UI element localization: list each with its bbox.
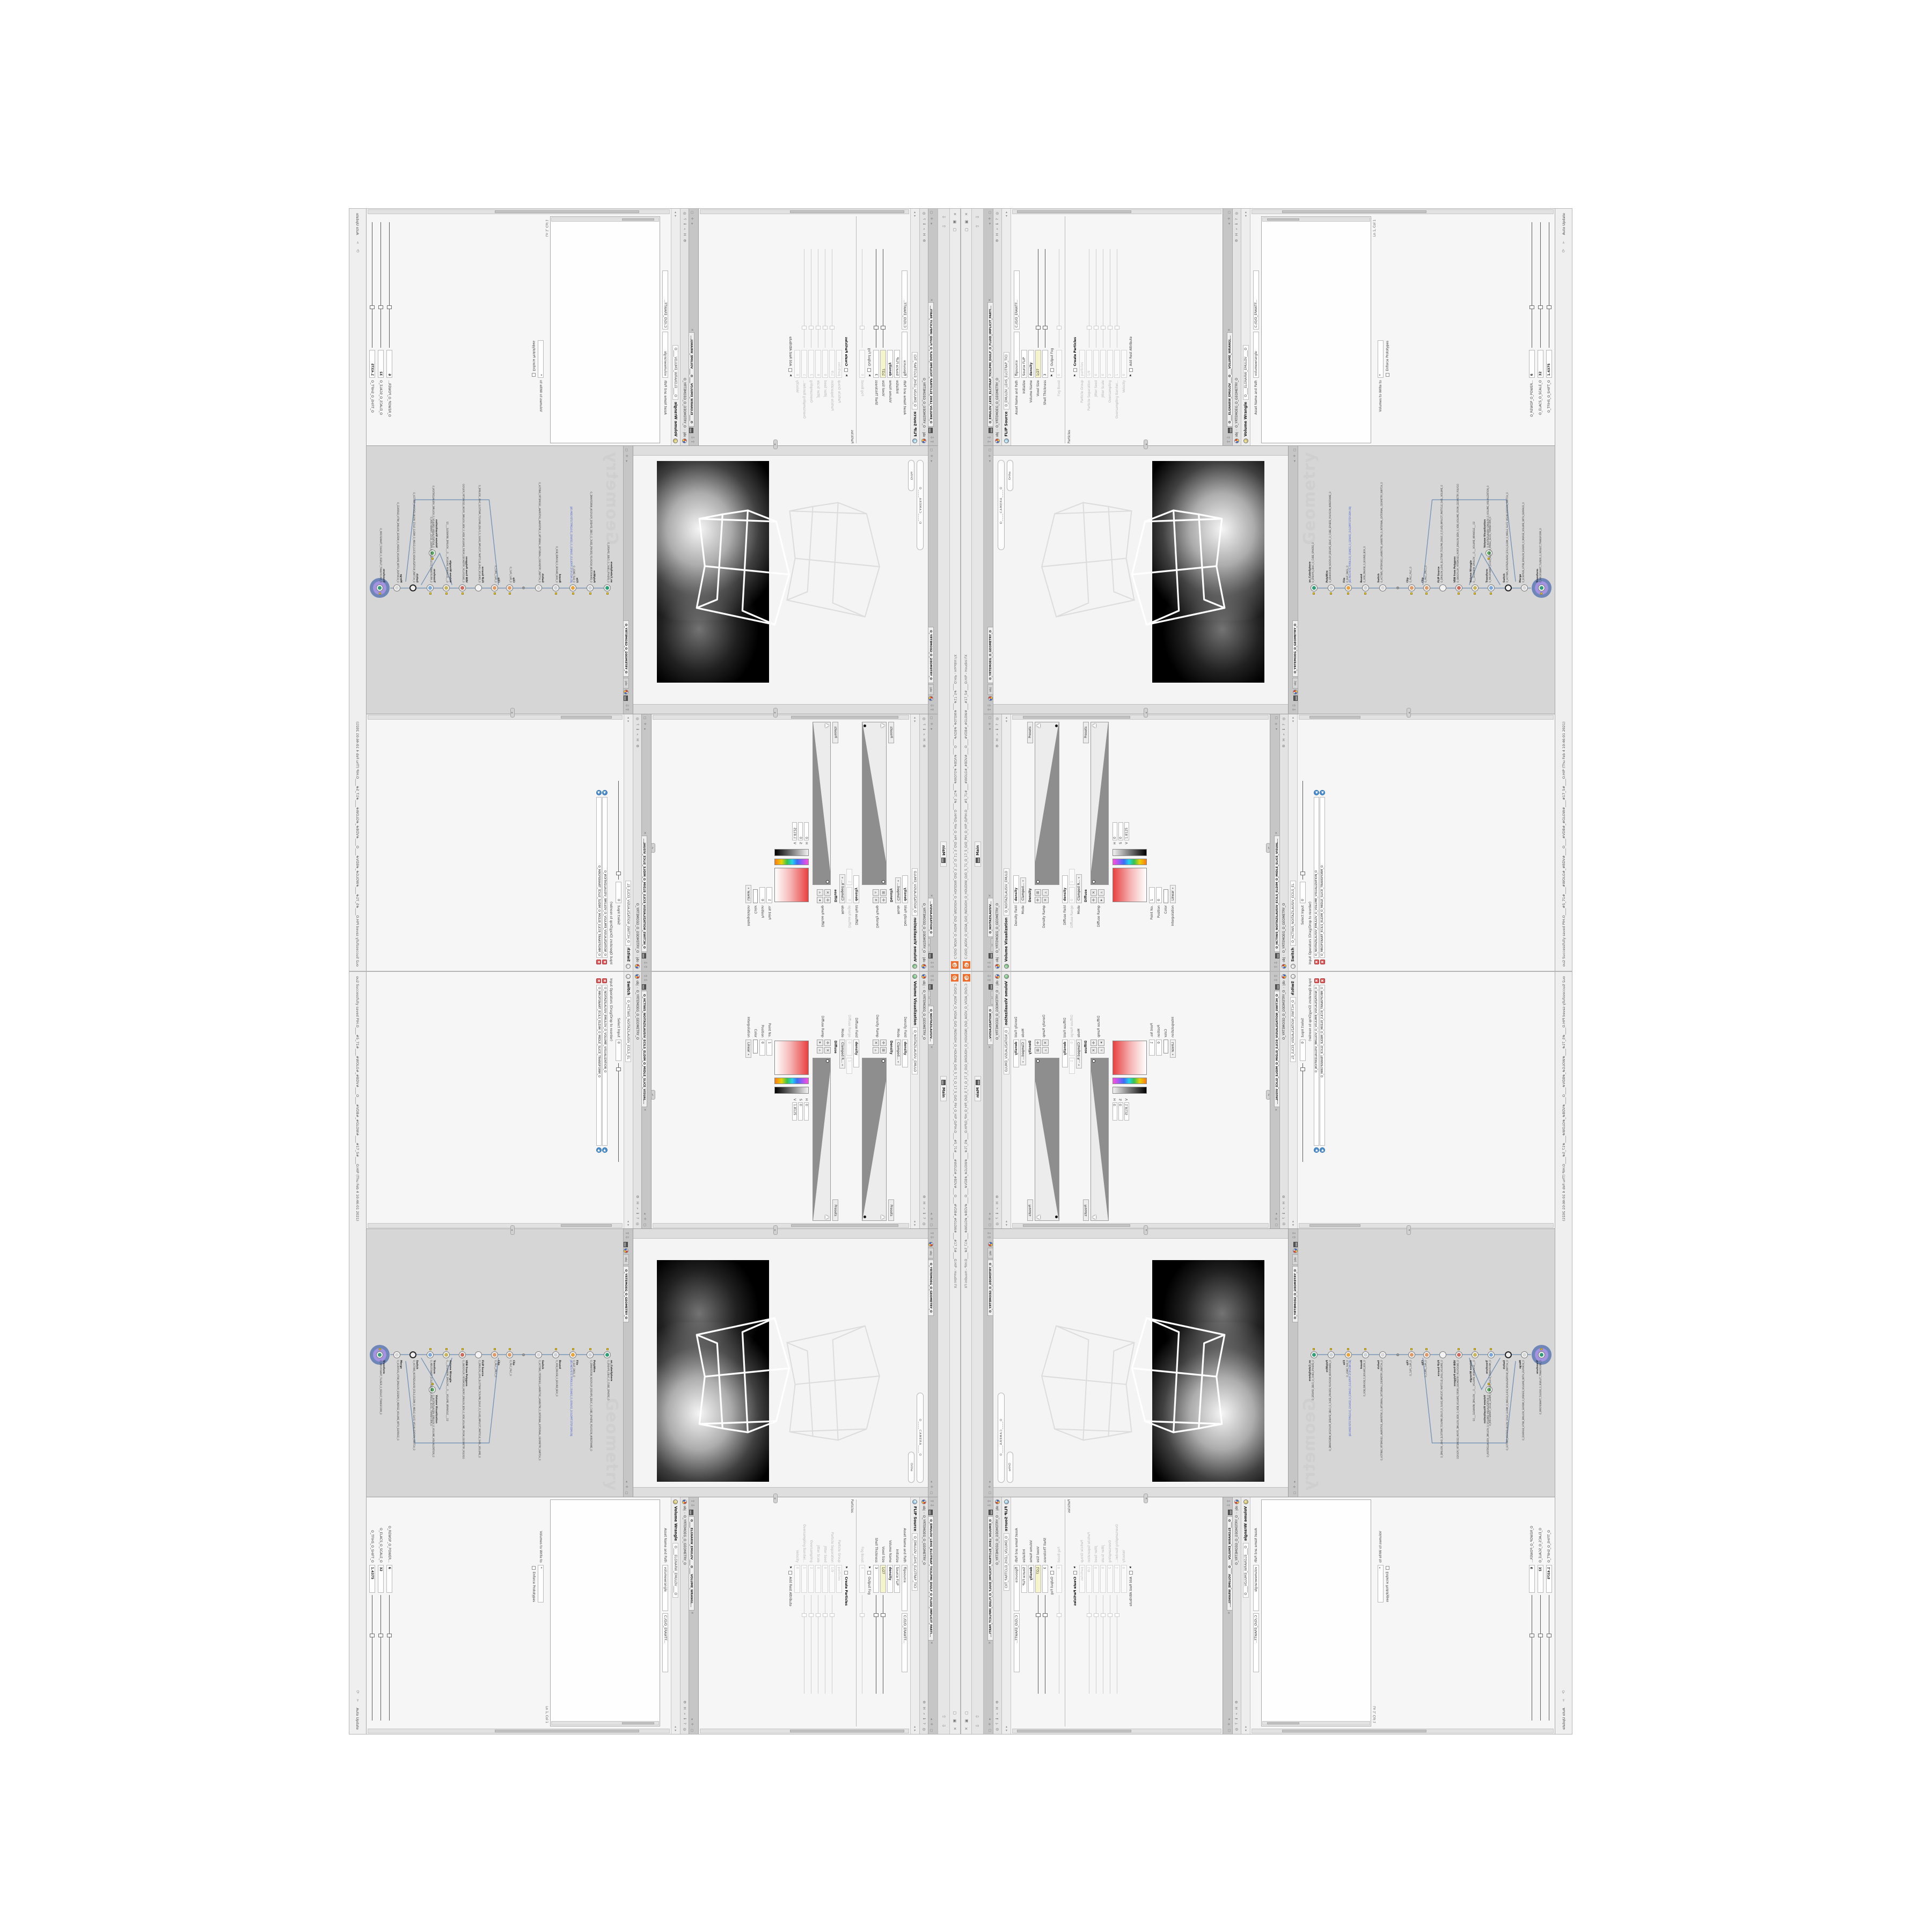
network-node[interactable]	[1394, 584, 1401, 591]
menu-item[interactable]	[943, 1002, 945, 1009]
param-slider[interactable]	[809, 1595, 814, 1697]
param-row[interactable]: Mode Clamped R...	[839, 974, 846, 1221]
node-name-field[interactable]: O_NOITAZILAUSIV_EMULO	[912, 868, 918, 916]
interpolation-dropdown[interactable]: Linear	[1170, 885, 1176, 903]
pane-maximize-icon[interactable]: ⇧⇩	[987, 1230, 993, 1240]
network-node[interactable]: Bound O_XOB_DNUOB_O_BOUND_BOX_O	[552, 584, 559, 591]
hsv-value[interactable]: 0	[1113, 822, 1117, 840]
param-slider[interactable]	[379, 1595, 384, 1724]
param-field[interactable]: 6	[1529, 1565, 1535, 1593]
hsv-value[interactable]: 0	[1118, 822, 1123, 840]
param-row[interactable]: ⚑ Shell Thickness 3	[873, 1499, 880, 1726]
param-row[interactable]: ⚑ Jitter Seed 0	[822, 216, 829, 443]
param-field[interactable]: density	[902, 875, 908, 903]
channel-row[interactable]: O_TFIHS_O_SHIFT_O 1.4375	[368, 1499, 377, 1726]
channel-row[interactable]: O_ELACS_O_SCALE_O 32	[1536, 216, 1545, 443]
scrollbar[interactable]	[1012, 209, 1221, 214]
param-field[interactable]: 0	[616, 1040, 621, 1061]
node-name-field[interactable]: O_HCTIWS_NOITAZILAUSIV_ECILS_EL	[1290, 881, 1296, 945]
param-row[interactable]: Mode Clamped...	[1020, 722, 1027, 969]
asset-name-field[interactable]: volumewrangle	[1253, 332, 1259, 378]
hsv-row[interactable]: H 0	[1113, 822, 1117, 846]
mode-dropdown[interactable]: Clamped...	[895, 1040, 901, 1065]
param-row[interactable]: Select Input 0	[1299, 974, 1306, 1221]
value-bar[interactable]	[1113, 1087, 1147, 1094]
scrollbar[interactable]	[1252, 1729, 1554, 1733]
checkbox[interactable]	[867, 368, 871, 372]
network-canvas[interactable]: Geometry	[367, 1229, 623, 1496]
param-row[interactable]: Position 0	[759, 722, 766, 969]
param-slider[interactable]	[1087, 246, 1092, 348]
hsv-value[interactable]: 1.8125	[792, 822, 797, 840]
node-name-field[interactable]: O_EMULOV_LEHS_ELCITRAP_TICI	[1004, 352, 1009, 409]
ramp-buttons[interactable]: ✛⊞✕▵	[862, 887, 887, 903]
scrollbar[interactable]	[368, 1729, 670, 1733]
param-field[interactable]: 0	[859, 1565, 865, 1593]
pane-splitter-handle[interactable]: ◂▸	[773, 1225, 778, 1235]
presets-button[interactable]: Presets	[832, 1199, 838, 1221]
network-node[interactable]: VDB from Polygons O_SNOGYLOP_YRTEMOEG_MO…	[459, 584, 466, 591]
breadcrumb-node[interactable]: O_YRTEMOEG_O_GEOMETRY_O	[1235, 378, 1239, 428]
pane-tab-active[interactable]: O_NOITAZILAUSIV...	[987, 898, 993, 936]
param-row[interactable]: Position 0	[759, 974, 766, 1221]
network-node[interactable]: VDB from Polygons O_SNOGYLOP_YRTEMOEG_MO…	[1455, 1351, 1462, 1358]
input-operator-field[interactable]: O_NOITAZILAUSIV_EMULOV_O_VOLUME_VISUALIZ…	[602, 797, 608, 958]
param-field[interactable]: 0	[794, 350, 800, 378]
node-name-field[interactable]: O_HCTIWS_NOITAZILAUSIV_ECILS_EL	[626, 881, 632, 945]
pane-maximize-icon[interactable]: ⇧⇩	[987, 973, 993, 983]
param-field[interactable]: 1/27	[880, 350, 886, 378]
pane-controls-icon[interactable]: ◂ ✛ ▢	[689, 210, 694, 225]
pane-splitter-handle[interactable]: ◂▸	[510, 708, 515, 718]
param-field[interactable]: density	[853, 875, 859, 903]
network-node[interactable]: Merge O_ECAFRUS_HTIW_EMULOV_EGREM_O_MERG…	[393, 1351, 400, 1358]
param-field[interactable]: 0	[1300, 882, 1306, 903]
checkbox[interactable]	[532, 1566, 536, 1570]
pane-icon-cluster[interactable]: ⚙ H ⌕ ℹ ? ◎	[1282, 1195, 1286, 1226]
pane-icon-cluster[interactable]: ⚙ H ⌕ ℹ ? ◎	[921, 716, 926, 748]
param-field[interactable]: 1	[1149, 887, 1155, 903]
param-field[interactable]: 1	[1114, 350, 1120, 378]
checkbox[interactable]	[788, 368, 792, 372]
param-slider[interactable]	[616, 778, 621, 880]
pane-maximize-icon[interactable]: ⇧⇩	[642, 960, 648, 970]
pane-tab-active[interactable]: O_EMULOV_LEHS_ELCITRAP_TICILPMI_DIULF_O_…	[987, 1516, 993, 1641]
scrollbar[interactable]	[653, 1223, 909, 1228]
menu-item[interactable]	[977, 942, 979, 949]
param-slider[interactable]	[1115, 1595, 1119, 1697]
delete-input-icon[interactable]: ✖	[597, 960, 602, 964]
checkbox[interactable]	[788, 1571, 792, 1575]
menu-item[interactable]	[977, 959, 979, 967]
window-buttons[interactable]: ▢ ▣ ✕	[964, 211, 969, 232]
param-field[interactable]: 1/27	[1035, 1565, 1041, 1593]
param-row[interactable]: ⚑ Jitter Scale 0	[1100, 1499, 1107, 1726]
pane-controls-icon[interactable]: ◂ ✛ ▢	[1227, 210, 1232, 225]
param-field[interactable]: 2	[808, 1565, 814, 1593]
channel-row[interactable]: O_REWOP_O_POWER... 6	[385, 216, 394, 443]
param-row[interactable]: Interpolation Linear	[1169, 722, 1176, 969]
diffuse-ramp-widget[interactable]	[813, 1058, 831, 1221]
pane-tab-active[interactable]: O____ELGNARW_EMULOV____O____VOLUME_WRANG…	[1227, 1516, 1232, 1611]
menu-item[interactable]	[977, 993, 979, 1001]
channel-row[interactable]: O_TFIHS_O_SHIFT_O 1.4375	[368, 216, 377, 443]
pane-splitter-handle[interactable]: ◂▸	[1407, 708, 1411, 718]
param-field[interactable]: particles	[836, 350, 842, 378]
pane-tab-active[interactable]: O_YRTEMOEG_O_GEOMETRY_O	[928, 627, 934, 683]
network-node[interactable]: Volume Wrangle O___ELGNARW_EMULOV___O___…	[443, 1351, 450, 1358]
network-node[interactable]: VDB from Polygons O_SNOGYLOP_YRTEMOEG_MO…	[459, 1351, 466, 1358]
input-operator-field[interactable]: O_MROFSNART_ECILS_ELDIM_O_MIDLE_SLICE_TR…	[596, 797, 602, 958]
param-field[interactable]: 1.4375	[1546, 350, 1552, 378]
pane-tab[interactable]: obj	[928, 684, 934, 695]
param-slider[interactable]	[1529, 219, 1534, 348]
pane-maximize-icon[interactable]: ⇧⇩	[928, 702, 934, 712]
close-icon[interactable]: ✕	[928, 1046, 933, 1050]
pane-maximize-icon[interactable]: ⇧⇩	[1292, 1230, 1298, 1240]
checkbox[interactable]	[1129, 368, 1133, 372]
pane-controls-icon[interactable]: ◂ ✛ ▢	[928, 1718, 933, 1733]
checkbox[interactable]	[867, 1571, 871, 1575]
viewport-canvas[interactable]: O____CAMERA____O Ortho	[993, 1229, 1288, 1496]
param-field[interactable]: 2	[1107, 350, 1113, 378]
param-slider[interactable]	[1547, 219, 1552, 348]
ortho-view-pill[interactable]: Ortho	[1007, 460, 1013, 491]
pane-maximize-icon[interactable]: ⇧⇩	[928, 1498, 934, 1509]
pane-controls-icon[interactable]: ◂ ✛ ▢	[988, 1481, 993, 1496]
pane-maximize-icon[interactable]: ⇧⇩	[642, 973, 648, 983]
param-field[interactable]: 1/27	[1035, 350, 1041, 378]
network-node[interactable]: FLIP Source O_EMULOV_LEHS_ELCITRAP_TICIL…	[475, 1351, 482, 1358]
pane-tab-active[interactable]: O_YRTEMOEG_O_GEOMETRY_O	[1292, 1266, 1298, 1322]
param-field[interactable]: Source FLIP	[1021, 350, 1027, 378]
param-row[interactable]: ⚑ Output Fog	[866, 216, 873, 443]
pane-splitter-handle[interactable]: ▴▾	[651, 843, 655, 853]
param-row[interactable]: ⚑ Particle Group particles	[1079, 216, 1086, 443]
breadcrumb-node[interactable]: O_YRTEMOEG_O_GEOMETRY_O	[922, 903, 926, 953]
param-row[interactable]: ⚑ Particles	[850, 216, 857, 443]
param-row[interactable]: ⚑ Particles	[1065, 1499, 1072, 1726]
param-slider[interactable]	[1043, 1595, 1048, 1697]
asset-path-field[interactable]: C:/O/O_ERAWTF...	[662, 270, 668, 330]
channel-row[interactable]: O_REWOP_O_POWER... 6	[385, 1499, 394, 1726]
input-operator-field[interactable]: O_NOITAZILAUSIV_EMULOV_O_VOLUME_VISUALIZ…	[602, 985, 608, 1146]
close-icon[interactable]: ✕	[928, 893, 933, 897]
color-swatch[interactable]	[753, 889, 758, 903]
breadcrumb-root[interactable]: obj	[683, 1506, 686, 1511]
param-row[interactable]: Diffuse Range 0 1	[846, 974, 853, 1221]
param-field[interactable]: 6	[1529, 350, 1535, 378]
node-name-field[interactable]: O_HCTIWS_NOITAZILAUSIV_ECILS_EL	[1290, 997, 1296, 1062]
param-field[interactable]: 3	[1042, 350, 1048, 378]
pane-tab-active[interactable]: O_EMULOV_LEHS_ELCITRAP_TICILPMI_DIULF_O_…	[928, 1516, 934, 1641]
param-row[interactable]: ⚑ Fog Boost 0	[859, 216, 866, 443]
param-row[interactable]: ⚑ Output Fog	[1049, 216, 1056, 443]
pane-tab-active[interactable]: O_HCTIWS_NOITAZILAUSIV_ECILS_ELDIM_O_MID…	[1274, 991, 1279, 1107]
param-row[interactable]: ⚑ Particles	[850, 1499, 857, 1726]
param-row[interactable]: Point No. 1	[1148, 974, 1155, 1221]
pane-icon-cluster[interactable]: ⚙ H ⌕ ℹ ? ◎	[1282, 716, 1286, 748]
hue-bar[interactable]	[1113, 1078, 1147, 1084]
param-row[interactable]: Color	[1162, 974, 1169, 1221]
param-field[interactable]: 6	[387, 350, 393, 378]
menu-item[interactable]	[977, 1002, 979, 1009]
param-row[interactable]: ⚑ Particles	[1065, 216, 1072, 443]
menu-item[interactable]	[977, 933, 979, 941]
pane-icon-cluster[interactable]: ⚙ H ⌕ ℹ ? ◎	[995, 716, 1000, 748]
pane-controls-icon[interactable]: ◂ ✛ ▢	[928, 1481, 933, 1496]
close-icon[interactable]: ✕	[1227, 1612, 1232, 1615]
density-ramp-widget[interactable]	[862, 722, 887, 885]
presets-button[interactable]: Presets	[1083, 722, 1089, 743]
pane-icon-cluster[interactable]: ⚙ H ⌕ ℹ ? ◎	[682, 211, 687, 242]
menu-item[interactable]	[943, 933, 945, 941]
param-field[interactable]: 1	[846, 869, 852, 885]
param-slider[interactable]	[830, 1595, 835, 1697]
scrollbar[interactable]	[1299, 1223, 1554, 1228]
param-field[interactable]: 32	[1538, 350, 1543, 378]
network-node[interactable]: Transform O_MROFSNART_TLUSER_O_RESULT_TR…	[376, 584, 383, 591]
delete-input-icon[interactable]: ✖	[1314, 960, 1319, 964]
network-node[interactable]: Volume Wrangle O___ELGNARW_EMULOV___O___…	[1472, 584, 1479, 591]
scrollbar[interactable]	[1262, 217, 1370, 222]
param-field[interactable]: density	[853, 1040, 859, 1067]
pane-splitter-handle[interactable]: ▴▾	[1266, 1090, 1270, 1100]
network-node[interactable]: Switch O_HCTIWS_YRTEMOEG_LANRETXE_LANRET…	[1379, 584, 1386, 591]
pane-icon-cluster[interactable]: ⚙ H ⌕ ℹ ? ◎	[995, 211, 1000, 242]
param-slider[interactable]	[816, 1595, 821, 1697]
pane-splitter-handle[interactable]: ◂▸	[773, 440, 778, 449]
param-row[interactable]: Density Field density	[902, 722, 909, 969]
close-icon[interactable]: ✕	[1275, 831, 1279, 835]
param-field[interactable]: 1.4375	[1546, 1565, 1552, 1593]
param-field[interactable]: 1	[1114, 1565, 1120, 1593]
param-row[interactable]: Density Field density	[1013, 974, 1020, 1221]
param-slider[interactable]	[1043, 246, 1048, 348]
pane-maximize-icon[interactable]: ⇧⇩	[1226, 434, 1232, 444]
network-node[interactable]: PolyWire O_EMARFERIW_NOGYLOP_EREHPS_EBUC…	[587, 1351, 594, 1358]
pane-maximize-icon[interactable]: ⇧⇩	[1274, 973, 1279, 983]
presets-button[interactable]: Presets	[1027, 1199, 1033, 1221]
scrollbar[interactable]	[368, 209, 670, 214]
param-slider[interactable]	[1087, 1595, 1092, 1697]
auto-update-selector[interactable]: Auto Update	[356, 213, 360, 235]
checkbox[interactable]	[1386, 1566, 1389, 1570]
pane-tab[interactable]	[991, 946, 993, 952]
param-row[interactable]: ⚑ Fog Boost 0	[1056, 216, 1063, 443]
scrollbar[interactable]	[1012, 715, 1269, 720]
pane-icon-cluster[interactable]: ⚙ H ⌕ ℹ ? ◎	[682, 1701, 687, 1732]
asset-name-field[interactable]: flipsource	[1014, 332, 1020, 378]
hsv-row[interactable]: S 0	[1118, 1096, 1123, 1121]
param-row[interactable]: Color	[752, 974, 759, 1221]
breadcrumb-node[interactable]: O_YRTEMOEG_O_GEOMETRY_O	[996, 903, 999, 953]
collapse-arrows-icon[interactable]: ◂ ▸	[1244, 1726, 1248, 1732]
pane-tab[interactable]	[928, 938, 931, 945]
pane-maximize-icon[interactable]: ⇧⇩	[1274, 960, 1279, 970]
param-field[interactable]: 1	[766, 1040, 772, 1056]
breadcrumb-root[interactable]: obj	[922, 957, 926, 962]
param-field[interactable]: 0	[616, 882, 621, 903]
breadcrumb-root[interactable]: obj	[996, 1506, 999, 1511]
pane-splitter-handle[interactable]: ▴▾	[651, 1090, 655, 1100]
param-row[interactable]: ⚑ Jitter Scale 0	[1100, 216, 1107, 443]
mode-dropdown[interactable]: Clamped R...	[839, 1040, 845, 1069]
param-row[interactable]: Position 0	[1155, 974, 1162, 1221]
network-node[interactable]: an_CubeSphere O_EREHPS_EBUC_O_CUBE_SPHER…	[1311, 584, 1318, 591]
value-bar[interactable]	[774, 1087, 809, 1094]
param-field[interactable]: 32	[378, 350, 384, 378]
network-node[interactable]: Clip O_PILC_2PILC_O	[1423, 1351, 1430, 1358]
close-icon[interactable]: ✕	[642, 831, 647, 835]
param-slider[interactable]	[874, 246, 879, 348]
network-node[interactable]: Transform O_MROFSNART_TLUSER_O_RESULT_TR…	[1538, 584, 1545, 591]
pane-controls-icon[interactable]: ◂ ✛ ▢	[928, 210, 933, 225]
param-row[interactable]: ⚑ Fog Boost 0	[1056, 1499, 1063, 1726]
breadcrumb-node[interactable]: O_YRTEMOEG_O_GEOMETRY_O	[635, 903, 639, 953]
collapse-arrows-icon[interactable]: ◂ ▸	[913, 1220, 917, 1226]
pane-tab[interactable]	[928, 991, 931, 997]
param-field[interactable]: 6	[387, 1565, 393, 1593]
pane-tab-active[interactable]: O_YRTEMOEG_O_GEOMETRY_O	[987, 627, 993, 683]
param-row[interactable]: ⚑ Oversampling Bandwi... 1	[801, 1499, 808, 1726]
param-row[interactable]: ⚑ Jitter Seed 0	[1093, 1499, 1100, 1726]
pane-tab-active[interactable]: O_EMULOV_LEHS_ELCITRAP_TICILPMI_DIULF_O_…	[928, 302, 934, 427]
mode-dropdown[interactable]: Clamped R...	[1076, 874, 1082, 903]
network-node[interactable]: Switch O_HCTIWS_NOITAZILAUSV_ECILS_ELDIM…	[1505, 1351, 1512, 1358]
param-row[interactable]: ⚑ Oversampling Bandwi... 1	[1114, 216, 1121, 443]
network-node[interactable]: Transform O_MROFSNART_ECILS_ELDIM_O_MIDL…	[1488, 1351, 1495, 1358]
param-field[interactable]: density	[1062, 875, 1068, 903]
breadcrumb-root[interactable]: obj	[1235, 432, 1239, 437]
asset-name-field[interactable]: flipsource	[902, 1565, 908, 1611]
vex-code-editor[interactable]	[550, 1499, 660, 1726]
param-row[interactable]: ⚑ Particle Separation 1/9	[829, 216, 836, 443]
mode-dropdown[interactable]: Clamped R...	[1076, 1040, 1082, 1069]
insert-input-icon[interactable]: ◀	[596, 790, 602, 795]
param-slider[interactable]	[1115, 246, 1119, 348]
param-row[interactable]: Enforce Prototypes	[530, 216, 537, 443]
pane-tab[interactable]: obj	[624, 678, 629, 689]
menu-item[interactable]	[943, 925, 945, 932]
param-field[interactable]: 1/9	[829, 1565, 835, 1593]
param-row[interactable]: ⚑ Initialize Source FLIP	[1021, 1499, 1028, 1726]
breadcrumb-root[interactable]: obj	[683, 432, 686, 437]
param-field[interactable]: 1	[766, 887, 772, 903]
menu-item[interactable]	[977, 916, 979, 924]
asset-path-field[interactable]: C:/O/O_ERAWTF...	[1014, 1613, 1020, 1672]
param-row[interactable]: ⚑ Particle Separation 1/9	[829, 1499, 836, 1726]
param-field[interactable]: 3	[1042, 1565, 1048, 1593]
pane-tab-active[interactable]: O_NOITAZILAUSIV...	[928, 1006, 934, 1044]
ramp-buttons[interactable]: ✛⊞✕▵	[1035, 1040, 1059, 1056]
saturation-value-square[interactable]	[1113, 1041, 1147, 1075]
param-row[interactable]: ⚑ Voxel Size 1/27	[880, 216, 887, 443]
pane-splitter-handle[interactable]: ▴▾	[1266, 843, 1270, 853]
pane-tab-active[interactable]: O_HCTIWS_NOITAZILAUSIV_ECILS_ELDIM_O_MID…	[1274, 836, 1279, 952]
hue-bar[interactable]	[774, 1078, 809, 1084]
menu-item[interactable]	[977, 950, 979, 958]
param-field[interactable]: 1	[801, 350, 807, 378]
network-node[interactable]: Bound O_XOB_DNUOB_O_BOUND_BOX_O	[1362, 1351, 1369, 1358]
insert-input-icon[interactable]: ◀	[602, 1147, 608, 1153]
network-node[interactable]: VDB from Polygons O_SNOGYLOP_YRTEMOEG_MO…	[1455, 584, 1462, 591]
window-buttons[interactable]: ▢ ▣ ✕	[953, 1711, 957, 1732]
pane-icon-cluster[interactable]: ⚙ H ⌕ ℹ ? ◎	[995, 1195, 1000, 1226]
param-row[interactable]: ⚑ Create Particles	[1072, 216, 1079, 443]
param-row[interactable]: ⚑ Velocity 0	[1121, 216, 1128, 443]
network-node[interactable]: Transform O_MROFSNART_ECILS_ELDIM_O_MIDL…	[427, 584, 434, 591]
param-row[interactable]: Volumes to Write to *	[537, 1499, 544, 1726]
network-node[interactable]	[1394, 1351, 1401, 1358]
network-node[interactable]	[520, 1351, 527, 1358]
param-row[interactable]: ⚑ Initialize Source FLIP	[1021, 216, 1028, 443]
menubar-arrows-icon[interactable]: ⇧ ⇩	[975, 1715, 980, 1730]
diffuse-ramp-widget[interactable]	[813, 722, 831, 885]
network-canvas[interactable]: Geometry	[367, 446, 623, 713]
param-row[interactable]: Diffuse Range 0 1	[1069, 974, 1075, 1221]
desktop-selector[interactable]: Main	[975, 1076, 981, 1101]
param-field[interactable]: density	[887, 350, 893, 378]
breadcrumb-node[interactable]: O_YRTEMOEG_O_GEOMETRY_O	[1282, 990, 1286, 1040]
param-row[interactable]: ⚑ Voxel Size 1/27	[880, 1499, 887, 1726]
breadcrumb-node[interactable]: O_YRTEMOEG_O_GEOMETRY_O	[996, 990, 999, 1040]
camera-selector-pill[interactable]: O____CAMERA____O	[917, 460, 924, 550]
insert-input-icon[interactable]: ◀	[1314, 1147, 1319, 1153]
param-row[interactable]: Diffuse Field density	[1062, 974, 1069, 1221]
breadcrumb-node[interactable]: O_YRTEMOEG_O_GEOMETRY_O	[635, 990, 639, 1040]
network-node[interactable]: Switch O_HCTIWS_NOITAZILAUSV_ECILS_ELDIM…	[409, 584, 416, 591]
network-node[interactable]: Clip O_PILC_PILC_O	[1408, 584, 1415, 591]
menu-item[interactable]	[977, 925, 979, 932]
param-row[interactable]: ⚑ Oversampling 2	[1107, 1499, 1114, 1726]
insert-input-icon[interactable]: ◀	[602, 790, 608, 795]
hsv-value[interactable]: 0	[804, 822, 809, 840]
asset-path-field[interactable]: C:/O/O_ERAWTF...	[902, 270, 908, 330]
param-field[interactable]: 0	[815, 350, 821, 378]
delete-input-icon[interactable]: ✖	[1320, 960, 1325, 964]
collapse-arrows-icon[interactable]: ◂ ▸	[627, 716, 631, 722]
param-field[interactable]: *	[538, 1565, 544, 1602]
param-field[interactable]: particles	[1079, 350, 1085, 378]
color-swatch[interactable]	[1163, 1040, 1168, 1053]
breadcrumb-node[interactable]: O_YRTEMOEG_O_GEOMETRY_O	[683, 378, 686, 428]
channel-row[interactable]: O_REWOP_O_POWER... 6	[1527, 216, 1536, 443]
scrollbar[interactable]	[700, 209, 909, 214]
close-icon[interactable]: ✕	[988, 893, 993, 897]
param-slider[interactable]	[616, 1063, 621, 1165]
param-row[interactable]: Diffuse Field density	[1062, 722, 1069, 969]
param-slider[interactable]	[816, 246, 821, 348]
param-slider[interactable]	[379, 219, 384, 348]
network-node[interactable]: Clip O_PILC_PILC_O	[1408, 1351, 1415, 1358]
network-node[interactable]: File O_ELIF_DAOL_O JBO.M03.PETS.TRPDLS.D…	[1345, 1351, 1352, 1358]
param-field[interactable]: 1	[1069, 869, 1075, 885]
hsv-value[interactable]: 0	[798, 1102, 803, 1121]
param-field[interactable]: 1/9	[829, 350, 835, 378]
param-field[interactable]: 32	[1538, 1565, 1543, 1593]
param-slider[interactable]	[387, 219, 392, 348]
param-field[interactable]: 32	[378, 1565, 384, 1593]
param-field[interactable]: 1	[1149, 1040, 1155, 1056]
checkbox[interactable]	[844, 1571, 848, 1575]
delete-input-icon[interactable]: ✖	[597, 978, 602, 983]
param-row[interactable]: Enforce Prototypes	[530, 1499, 537, 1726]
pane-splitter-handle[interactable]: ◂▸	[773, 708, 778, 718]
param-slider[interactable]	[1547, 1595, 1552, 1724]
hue-bar[interactable]	[1113, 859, 1147, 865]
mode-dropdown[interactable]: Clamped...	[1020, 1040, 1026, 1065]
